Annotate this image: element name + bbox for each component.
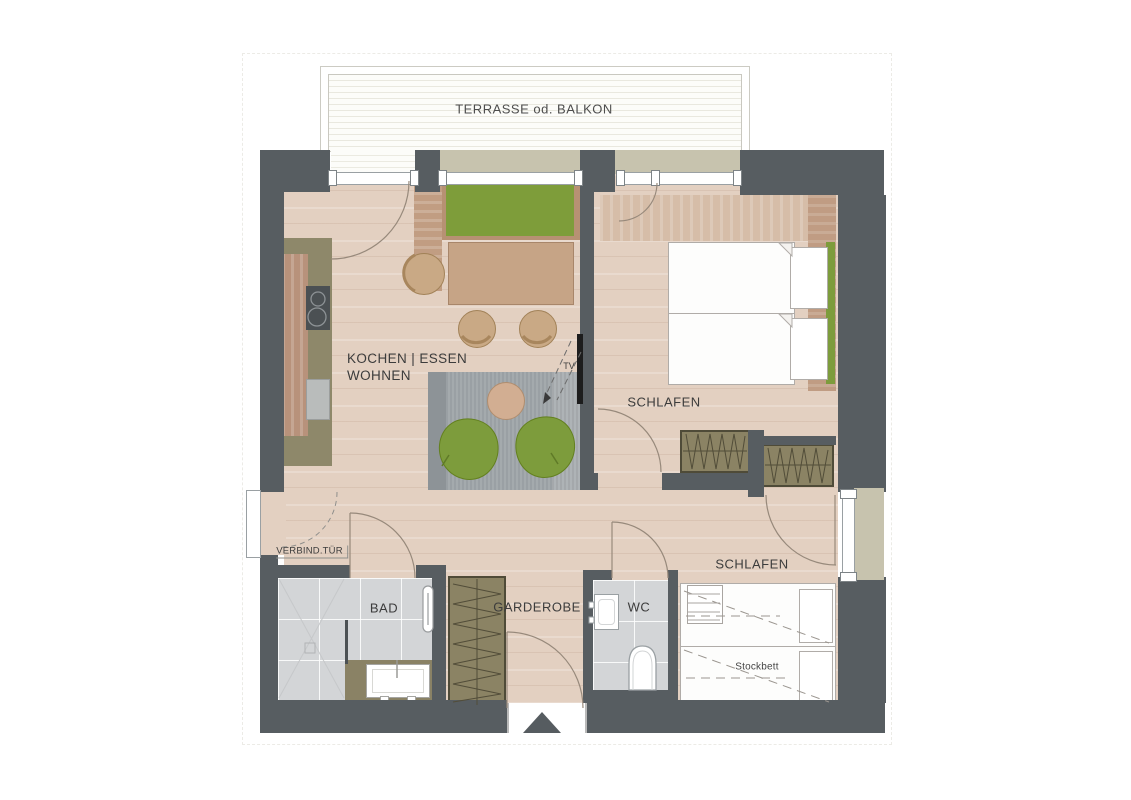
room-label-bedroom2: SCHLAFEN — [715, 557, 788, 572]
room-label-living: WOHNEN — [347, 368, 411, 383]
dining-chair — [519, 310, 557, 348]
pillow — [799, 651, 833, 705]
wall — [580, 192, 594, 473]
window-frame-cap — [574, 170, 583, 186]
wall — [740, 150, 884, 195]
window-frame-cap — [840, 572, 857, 582]
tv-label: TV — [563, 361, 575, 371]
window-frame-cap — [616, 170, 625, 186]
window — [842, 493, 855, 580]
wall — [260, 150, 330, 192]
room-label-wardrobe: GARDEROBE — [493, 600, 581, 615]
room-label-wc: WC — [628, 600, 651, 615]
wall — [260, 192, 284, 492]
shower-partition — [345, 620, 348, 664]
connecting-door-label: VERBIND.TÜR — [276, 546, 348, 559]
wardrobe-closet — [448, 576, 506, 708]
wall — [432, 578, 446, 700]
wall — [748, 430, 764, 497]
kitchen-cabinets — [282, 254, 308, 436]
room-label-terrace: TERRASSE od. BALKON — [455, 102, 613, 117]
wardrobe — [762, 444, 834, 487]
terrace-door — [331, 172, 417, 185]
terrace-door-window — [618, 172, 742, 185]
dining-chair — [458, 310, 496, 348]
floor-plan: TERRASSE od. BALKON — [0, 0, 1131, 800]
bedside-console — [600, 195, 836, 241]
dining-chair — [403, 253, 445, 295]
room-label-bath: BAD — [370, 601, 398, 616]
single-bed — [668, 313, 795, 385]
single-bed — [668, 242, 795, 314]
window-frame-cap — [840, 489, 857, 499]
wall — [764, 436, 836, 445]
stove-icon — [306, 286, 330, 330]
wall — [580, 473, 598, 490]
terrace-deck-threshold — [331, 150, 415, 173]
wall — [278, 565, 350, 578]
exterior-sill-right — [854, 488, 884, 580]
wardrobe — [680, 430, 750, 473]
bunk-bed-label: Stockbett — [735, 662, 779, 673]
dining-table — [448, 242, 574, 305]
room-label-kitchen-dining: KOCHEN | ESSEN — [347, 351, 467, 366]
wc-sink-basin — [598, 599, 615, 625]
bathroom-sink-basin — [372, 669, 424, 693]
window-bench-cushion — [446, 183, 574, 236]
window-frame-cap — [410, 170, 419, 186]
connecting-door-opening — [246, 490, 261, 558]
window-frame-cap — [651, 170, 660, 186]
wall — [583, 700, 885, 733]
wall — [580, 150, 615, 192]
coffee-table — [487, 382, 525, 420]
bunk-ladder — [687, 585, 723, 624]
pillow — [790, 318, 828, 380]
wall — [583, 690, 678, 703]
pillow — [790, 247, 828, 309]
wall — [416, 565, 446, 578]
window — [440, 172, 582, 185]
kitchen-sink — [306, 379, 330, 420]
window-frame-cap — [733, 170, 742, 186]
wall — [838, 195, 886, 492]
wall — [260, 700, 507, 733]
wall — [668, 570, 678, 690]
pillow — [799, 589, 833, 643]
wall — [838, 577, 886, 703]
entrance-arrow-icon — [523, 712, 561, 733]
room-label-bedroom1: SCHLAFEN — [627, 395, 700, 410]
window-frame-cap — [328, 170, 337, 186]
tv-icon — [577, 334, 583, 404]
wall — [583, 570, 593, 690]
wall — [260, 555, 278, 703]
window-frame-cap — [438, 170, 447, 186]
